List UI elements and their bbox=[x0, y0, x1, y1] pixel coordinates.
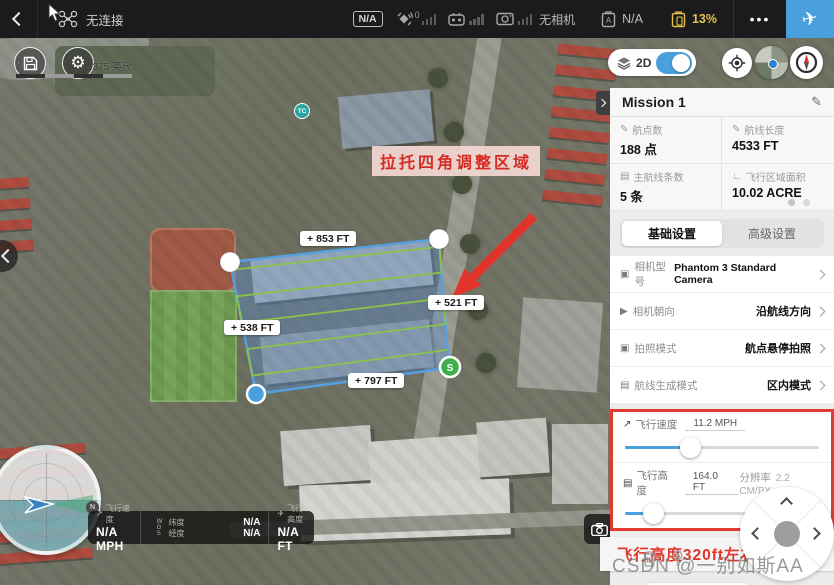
top-status-bar: 无连接 N/A 0 无相机 A N/A 13% ••• ✈ bbox=[0, 0, 834, 38]
chevron-right-icon bbox=[816, 306, 826, 316]
telemetry-speed: ↗飞行速度 N/A MPH bbox=[88, 511, 140, 544]
rc-battery-icon: A bbox=[601, 11, 616, 28]
compass-icon bbox=[795, 51, 818, 74]
chevron-left-icon bbox=[11, 12, 25, 26]
compass-reset-button[interactable] bbox=[790, 46, 823, 79]
chevron-right-icon bbox=[816, 343, 826, 353]
takeoff-button[interactable]: ✈ bbox=[786, 0, 834, 38]
map-tree bbox=[452, 174, 472, 194]
map-building-blue-roof bbox=[338, 89, 434, 149]
row-route-mode[interactable]: ▤航线生成模式 区内模式 bbox=[610, 367, 834, 403]
map-tree bbox=[428, 68, 448, 88]
attitude-dial bbox=[0, 445, 101, 555]
speed-slider-section: ↗ 飞行速度 11.2 MPH bbox=[613, 412, 831, 462]
satellite-icon bbox=[396, 11, 413, 27]
camera-status: 无相机 bbox=[539, 11, 575, 28]
row-camera-model[interactable]: ▣相机型号 Phantom 3 Standard Camera bbox=[610, 256, 834, 292]
map-poi-tc: TC bbox=[294, 103, 310, 119]
altitude-icon: ✈ bbox=[277, 509, 284, 518]
speed-slider-thumb[interactable] bbox=[680, 437, 701, 458]
stat-route-length: ✎航线长度 4533 FT bbox=[722, 117, 834, 164]
lng-value: N/A bbox=[243, 528, 260, 539]
back-button[interactable] bbox=[0, 0, 38, 38]
move-cross-icon: + bbox=[355, 375, 361, 387]
route-mode-icon: ▤ bbox=[620, 380, 629, 391]
map-building-campus1 bbox=[250, 241, 434, 304]
aircraft-heading-icon bbox=[25, 497, 53, 513]
mission-title: Mission 1 bbox=[622, 94, 686, 110]
map-road-vertical bbox=[413, 38, 504, 451]
map-building-right-bottom bbox=[552, 424, 608, 504]
satellite-count: 0 bbox=[415, 10, 420, 20]
map-red-buildings-topright bbox=[538, 43, 619, 248]
pan-right-button[interactable] bbox=[808, 527, 821, 540]
watermark-text: CSDN @一别如斯AA bbox=[612, 551, 804, 578]
chevron-left-icon bbox=[1, 249, 15, 263]
mouse-cursor bbox=[48, 3, 62, 23]
pan-left-button[interactable] bbox=[751, 527, 764, 540]
pan-center-button[interactable] bbox=[774, 521, 800, 547]
altitude-value: 164.0 FT bbox=[685, 471, 740, 495]
speed-icon: ↗ bbox=[96, 509, 103, 518]
panel-collapse-button[interactable] bbox=[596, 91, 610, 115]
chevron-right-icon bbox=[598, 99, 606, 107]
scale-start-label: 0 bbox=[16, 58, 22, 73]
map-building-white4 bbox=[299, 478, 511, 541]
mission-panel: Mission 1 ✎ ✎航点数 188 点 ✎航线长度 4533 FT ▤主航… bbox=[610, 88, 834, 585]
lat-value: N/A bbox=[243, 517, 260, 528]
camera-icon: ▣ bbox=[620, 269, 629, 280]
speed-value: N/A MPH bbox=[96, 525, 132, 553]
map-tree bbox=[460, 234, 480, 254]
edge-length-right: +521 FT bbox=[428, 295, 484, 310]
connection-status: 无连接 bbox=[86, 10, 124, 29]
move-cross-icon: + bbox=[231, 322, 237, 334]
waypoint-icon: ✎ bbox=[620, 124, 628, 135]
move-cross-icon: + bbox=[435, 297, 441, 309]
layers-icon bbox=[617, 56, 631, 70]
speed-value: 11.2 MPH bbox=[685, 418, 745, 431]
move-cross-icon: + bbox=[307, 233, 313, 245]
area-ruler-icon: ∟ bbox=[732, 171, 742, 182]
row-photo-mode[interactable]: ▣拍照模式 航点悬停拍照 bbox=[610, 330, 834, 366]
view-mode-label: 2D bbox=[636, 56, 651, 70]
chevron-right-icon bbox=[816, 269, 826, 279]
altitude-value: N/A FT bbox=[277, 525, 306, 553]
edge-length-top: +853 FT bbox=[300, 231, 356, 246]
stat-area: ∟飞行区域面积 10.02 ACRE bbox=[722, 164, 834, 211]
speed-icon: ↗ bbox=[623, 419, 631, 430]
gps-mode-badge: N/A bbox=[353, 11, 383, 27]
row-camera-heading[interactable]: ▶相机朝向 沿航线方向 bbox=[610, 293, 834, 329]
camera-signal-icon bbox=[496, 12, 514, 26]
edit-mission-button[interactable]: ✎ bbox=[811, 95, 822, 110]
map-building-white1 bbox=[280, 425, 374, 486]
remote-controller-icon bbox=[448, 12, 465, 26]
map-building-white2 bbox=[368, 434, 483, 512]
view-mode-toggle[interactable]: 2D bbox=[608, 49, 696, 76]
tab-basic-settings[interactable]: 基础设置 bbox=[622, 221, 722, 246]
edge-length-bottom: +797 FT bbox=[348, 373, 404, 388]
telemetry-bar: ↗飞行速度 N/A MPH WGS 纬度N/A 经度N/A ✈飞行高度 N/A … bbox=[88, 511, 314, 544]
map-soccer-field bbox=[150, 290, 237, 402]
chevron-right-icon bbox=[816, 380, 826, 390]
rc-signal-bars-icon bbox=[469, 14, 484, 25]
attitude-compass-widget[interactable]: N bbox=[0, 445, 101, 555]
telemetry-altitude: ✈飞行高度 N/A FT bbox=[268, 511, 314, 544]
photo-mode-icon: ▣ bbox=[620, 343, 629, 354]
pan-up-button[interactable] bbox=[780, 497, 793, 510]
scale-end-label: 375 英尺 bbox=[93, 58, 132, 73]
map-building-gray-right bbox=[517, 297, 603, 392]
heading-arrow-icon: ▶ bbox=[620, 306, 628, 317]
stat-main-lines: ▤主航线条数 5 条 bbox=[610, 164, 722, 211]
tab-advanced-settings[interactable]: 高级设置 bbox=[722, 221, 822, 246]
rc-battery-status: N/A bbox=[622, 12, 643, 26]
speed-slider[interactable] bbox=[625, 437, 819, 459]
gps-signal-bars-icon bbox=[422, 14, 437, 25]
stats-pagination-dots[interactable] bbox=[788, 199, 810, 206]
serpentine-icon: ▤ bbox=[620, 171, 629, 182]
stat-waypoints: ✎航点数 188 点 bbox=[610, 117, 722, 164]
edge-length-left: +538 FT bbox=[224, 320, 280, 335]
map-tree bbox=[444, 122, 464, 142]
map-building-campus2 bbox=[260, 319, 434, 385]
drag-corners-hint: 拉托四角调整区域 bbox=[372, 146, 540, 176]
map-track-field bbox=[150, 228, 236, 292]
mission-header: Mission 1 ✎ bbox=[610, 88, 834, 117]
locate-me-button[interactable] bbox=[722, 48, 752, 78]
altitude-icon: ▤ bbox=[623, 478, 632, 489]
settings-tabs: 基础设置 高级设置 bbox=[620, 219, 824, 248]
app-screen: S +853 FT +521 FT +538 FT +797 FT 拉托四角调整… bbox=[0, 0, 834, 585]
wgs-label: WGS bbox=[149, 519, 163, 537]
mission-stats: ✎航点数 188 点 ✎航线长度 4533 FT ▤主航线条数 5 条 ∟飞行区… bbox=[610, 117, 834, 211]
aircraft-battery-icon bbox=[671, 11, 686, 28]
more-options-button[interactable]: ••• bbox=[734, 11, 786, 27]
svg-text:A: A bbox=[606, 16, 612, 25]
telemetry-position: WGS 纬度N/A 经度N/A bbox=[140, 511, 269, 544]
minimap-button[interactable] bbox=[755, 46, 788, 79]
map-scale-bar: 0375 英尺 bbox=[16, 58, 132, 78]
camera-signal-bars-icon bbox=[518, 14, 533, 25]
2d-toggle-switch[interactable] bbox=[656, 52, 692, 74]
locate-icon bbox=[728, 54, 746, 72]
map-tree bbox=[476, 353, 496, 373]
airplane-icon: ✈ bbox=[800, 7, 820, 32]
battery-percent: 13% bbox=[692, 12, 717, 26]
map-building-white3 bbox=[476, 418, 550, 478]
camera-icon bbox=[591, 523, 608, 536]
route-length-icon: ✎ bbox=[732, 124, 740, 135]
altitude-slider-thumb[interactable] bbox=[643, 503, 664, 524]
